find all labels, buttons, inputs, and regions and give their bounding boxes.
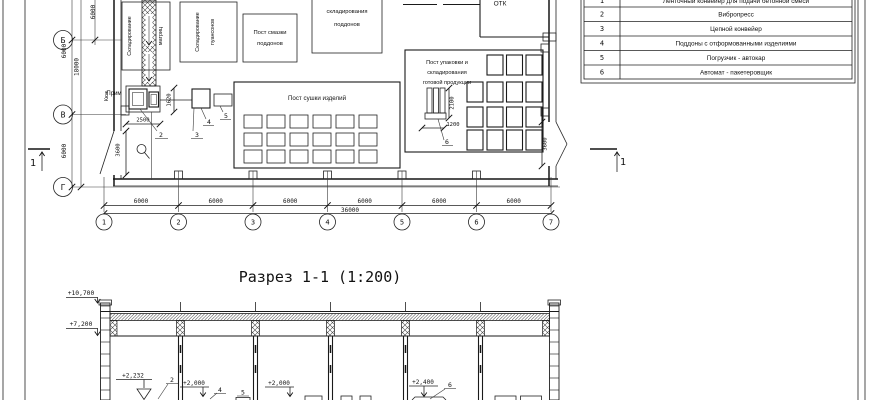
legend-label-3: Цепной конвейер <box>710 25 762 33</box>
section-roof <box>101 302 560 336</box>
svg-text:+2,400: +2,400 <box>412 379 434 386</box>
dim-36000: 36000 <box>341 207 359 214</box>
legend-label-5: Погрузчик - автокар <box>707 55 766 62</box>
legend-label-1: Ленточный конвейер для подачи бетонной с… <box>663 0 810 5</box>
col-label-7: 7 <box>549 219 553 227</box>
svg-text:+10,700: +10,700 <box>68 290 95 297</box>
svg-text:2: 2 <box>170 376 174 384</box>
otk-label: ОТК <box>494 1 507 8</box>
press-pit <box>126 86 160 112</box>
col-label-1: 1 <box>102 219 106 227</box>
svg-text:+2,000: +2,000 <box>183 380 205 387</box>
finished-goods-grid <box>467 55 542 150</box>
dim-bay-3: 6000 <box>283 198 298 205</box>
punch-storage-label-2: пуансонов <box>210 19 216 45</box>
callout-6: 6 <box>445 138 449 146</box>
vibropress <box>129 89 147 109</box>
floor-symbol <box>137 145 146 154</box>
section-callout-5: 5 <box>236 389 250 400</box>
section-title: Разрез 1-1 (1:200) <box>239 268 402 286</box>
callout-3: 3 <box>195 131 199 139</box>
section-cut-mark-right: 1 <box>590 149 626 172</box>
packer-machine: 2100 1200 6 <box>419 85 460 146</box>
matrix-storage-label-1: Складирование <box>127 16 133 55</box>
svg-text:4: 4 <box>218 386 222 394</box>
matrix-storage-label-2: матриц <box>158 27 164 45</box>
section-columns <box>179 336 483 400</box>
section-mark-label-left: 1 <box>30 158 36 169</box>
forklift-box <box>214 94 232 106</box>
drying-post-label: Пост сушки изделий <box>288 95 347 102</box>
elevation-triangle <box>137 389 151 400</box>
dim-bay-4: 6000 <box>357 198 372 205</box>
elevation-2000-b: +2,000 <box>265 380 294 397</box>
legend-table: 1 Ленточный конвейер для подачи бетонной… <box>581 0 855 83</box>
section-callout-2: 2 <box>158 376 178 399</box>
dim-bay-bv: 6000 <box>61 43 68 58</box>
svg-text:5: 5 <box>241 389 245 397</box>
dim-bay-5: 6000 <box>432 198 447 205</box>
legend-label-6: Автомат - пакетеровщик <box>700 70 772 77</box>
svg-text:+2,232: +2,232 <box>122 373 144 380</box>
pallet-storage-label-2: поддонов <box>334 22 360 28</box>
drawing-sheet: Складирование матриц Складирование пуанс… <box>0 0 870 400</box>
legend-num-1: 1 <box>600 0 604 5</box>
elevation-2000-a: +2,000 <box>180 380 209 397</box>
dim-1200: 1200 <box>446 122 459 128</box>
section-cut-mark-left: 1 <box>28 149 50 171</box>
elevation-7200: +7,200 <box>66 321 100 336</box>
section-mark-label-right: 1 <box>620 157 626 168</box>
dim-bay-2: 6000 <box>208 198 223 205</box>
legend-num-6: 6 <box>600 69 604 77</box>
plan-view: Складирование матриц Складирование пуанс… <box>28 0 626 230</box>
callout-2: 2 <box>159 131 163 139</box>
section-callout-4: 4 <box>210 386 226 399</box>
grease-post-label-1: Пост смазки <box>253 30 286 36</box>
callout-4: 4 <box>207 118 211 126</box>
legend-num-3: 3 <box>600 25 604 33</box>
legend-label-4: Поддоны с отформованными изделиями <box>676 41 797 48</box>
dim-bay-top: 6000 <box>90 4 97 19</box>
wall-note-label: Кюж <box>104 90 110 101</box>
col-label-3: 3 <box>251 219 255 227</box>
dim-2100: 2100 <box>450 96 456 109</box>
elevation-2400: +2,400 <box>409 379 446 400</box>
elevation-10700: +10,700 <box>66 290 100 303</box>
section-view: Разрез 1-1 (1:200) <box>66 268 561 400</box>
svg-text:+7,200: +7,200 <box>70 321 93 328</box>
col-label-6: 6 <box>474 219 478 227</box>
dim-bay-vg: 6000 <box>61 143 68 158</box>
dim-bay-1: 6000 <box>134 198 149 205</box>
legend-num-4: 4 <box>600 40 604 48</box>
col-label-2: 2 <box>176 219 180 227</box>
col-label-4: 4 <box>325 219 329 227</box>
dim-bay-6: 6000 <box>506 198 521 205</box>
callout-5: 5 <box>224 112 228 120</box>
row-label-b: Б <box>61 36 66 45</box>
grease-post-label-2: поддонов <box>257 41 283 47</box>
packing-post-label-2: складирования <box>427 70 467 76</box>
chain-conveyor <box>192 89 210 108</box>
left-gate-leaf <box>100 131 114 174</box>
svg-text:6: 6 <box>448 381 452 389</box>
plan-callouts: 2 3 4 5 <box>140 106 231 139</box>
elevation-2232: +2,232 <box>116 373 152 400</box>
row-label-g: Г <box>61 183 66 192</box>
legend-label-2: Вибропресс <box>718 11 754 19</box>
punch-storage-box <box>180 2 237 62</box>
press-dimensions: 2500 1620 <box>123 85 177 127</box>
row-label-v: В <box>61 111 66 120</box>
vibropress-equipment <box>126 86 232 180</box>
pallet-storage-label-1: складирования <box>327 9 368 15</box>
section-callout-6: 6 <box>430 381 456 399</box>
packing-post-label-1: Пост упаковки и <box>426 60 468 66</box>
col-label-5: 5 <box>400 219 404 227</box>
dim-3600-left: 3600 <box>116 143 122 156</box>
dim-2500: 2500 <box>136 118 149 124</box>
column-axes: 6000 6000 6000 6000 6000 6000 36000 1 2 … <box>96 171 559 230</box>
legend-num-2: 2 <box>600 11 604 19</box>
legend-num-5: 5 <box>600 54 604 62</box>
svg-text:+2,000: +2,000 <box>268 380 290 387</box>
grease-post-box <box>243 14 297 62</box>
drying-pallet-grid <box>244 115 377 163</box>
punch-storage-label-1: Складирование <box>195 12 201 51</box>
dim-18000: 18000 <box>74 58 81 76</box>
dim-1620: 1620 <box>167 93 173 106</box>
packing-post-label-3: готовой продукции <box>423 79 471 86</box>
right-gate-leaf <box>556 122 567 144</box>
vertical-dimensions: 6000 6000 18000 6000 <box>61 0 98 190</box>
dim-3600-right: 3600 <box>543 137 549 150</box>
